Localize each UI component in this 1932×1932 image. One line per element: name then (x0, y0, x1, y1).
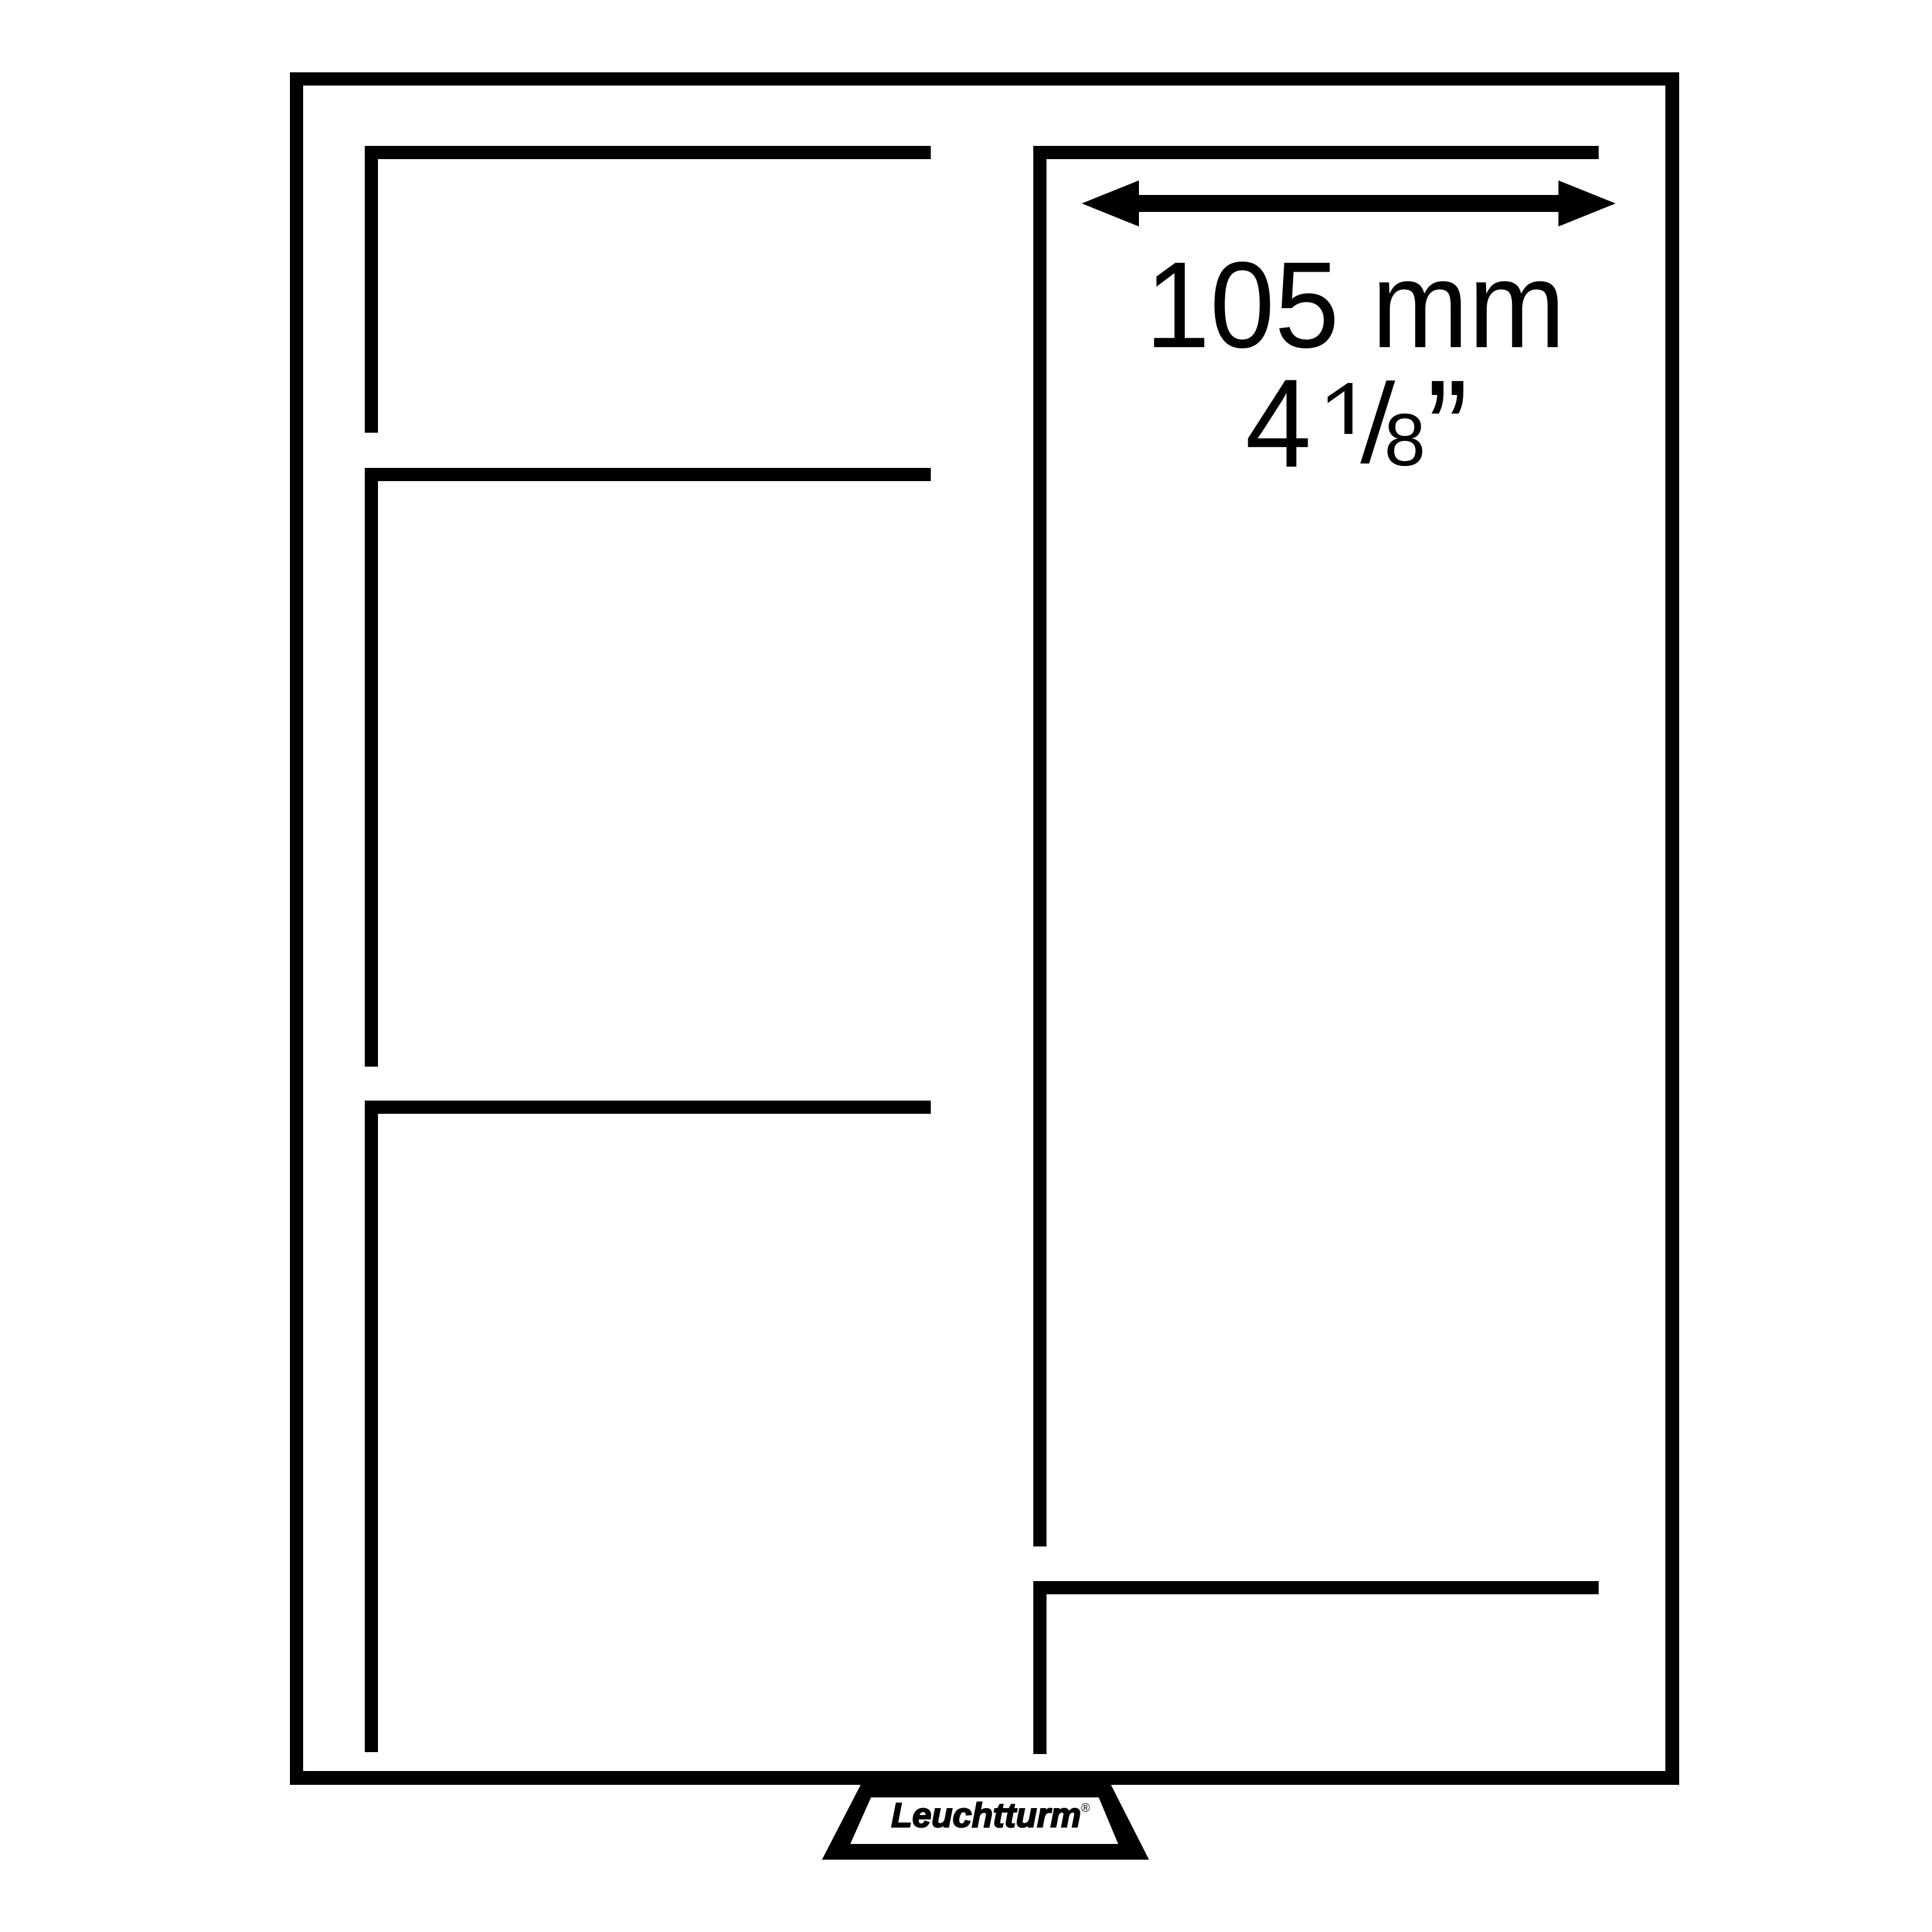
svg-text:®: ® (1081, 1802, 1090, 1815)
svg-text:Leuchtturm: Leuchtturm (891, 1796, 1081, 1835)
svg-text:”: ” (1427, 350, 1468, 513)
svg-text:8: 8 (1384, 399, 1426, 482)
svg-text:4: 4 (1245, 353, 1311, 494)
svg-text:105 mm: 105 mm (1145, 236, 1565, 374)
